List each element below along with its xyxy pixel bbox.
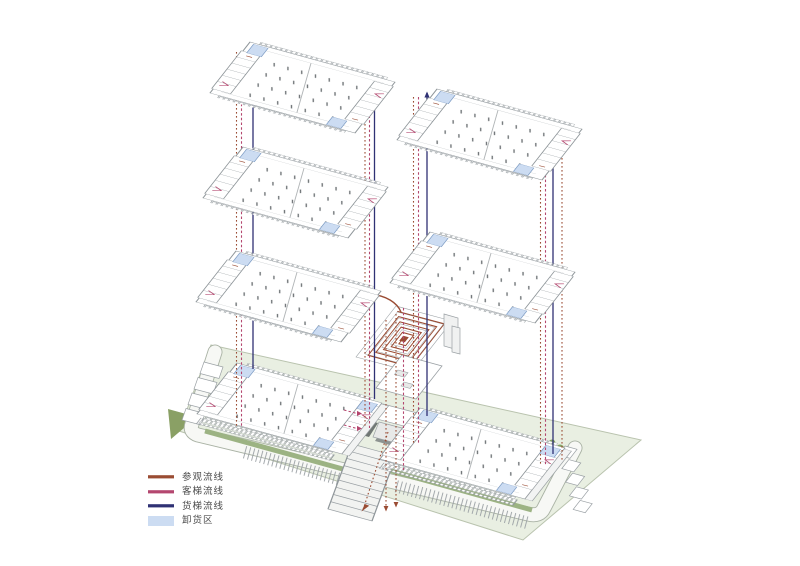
unloading-area-swatch bbox=[148, 516, 174, 526]
legend-label: 参观流线 bbox=[182, 473, 224, 483]
legend: 参观流线 客梯流线 货梯流线 卸货区 bbox=[148, 471, 224, 527]
left-tower-plate-2 bbox=[200, 144, 392, 240]
legend-label: 客梯流线 bbox=[182, 487, 224, 497]
right-tower-plate-1 bbox=[394, 86, 586, 182]
legend-label: 货梯流线 bbox=[182, 502, 224, 512]
freight-elevator-swatch bbox=[148, 501, 174, 511]
legend-item-passenger-elevator: 客梯流线 bbox=[148, 486, 224, 499]
legend-item-unloading-area: 卸货区 bbox=[148, 515, 224, 528]
left-tower-plate-3 bbox=[193, 248, 385, 344]
passenger-elevator-swatch bbox=[148, 487, 174, 497]
axonometric-diagram bbox=[0, 0, 800, 566]
page: 参观流线 客梯流线 货梯流线 卸货区 bbox=[0, 0, 800, 566]
legend-item-visitor-route: 参观流线 bbox=[148, 471, 224, 484]
wall-panel bbox=[452, 326, 460, 354]
visitor-route-swatch bbox=[148, 472, 174, 482]
legend-item-freight-elevator: 货梯流线 bbox=[148, 500, 224, 513]
legend-label: 卸货区 bbox=[182, 516, 214, 526]
